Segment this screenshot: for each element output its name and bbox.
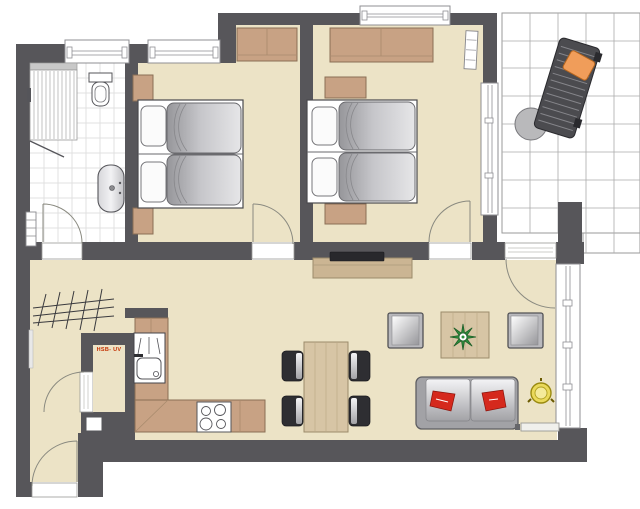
shower-valve [27,88,31,102]
double-bed [138,100,243,208]
wall-top-step [218,13,236,63]
nightstand [133,75,153,101]
pillow [141,106,166,146]
tv [330,252,384,261]
hall-floor [30,440,78,482]
plant [450,324,476,350]
bathroom-door-sill [42,243,82,259]
bedroom2-door-sill [429,243,471,259]
wall-bed2-right-upper [483,25,497,83]
terrace-tiles-strip [583,233,640,253]
wall-kitchen-stub [125,308,168,318]
dining-chair [282,396,303,426]
sofa [416,377,518,429]
doormat [515,423,559,431]
wall-closet-top [81,333,135,345]
armchair [388,313,423,348]
wall-bottom-step [78,433,103,497]
living-room-glazing [556,264,580,428]
kitchen-sink [134,333,165,383]
wall-closet-left [81,345,93,372]
washbasin-tap-dot [119,192,121,194]
dining-chair [349,351,370,381]
wall-mid-2 [82,242,252,260]
double-bed [307,100,417,203]
radiator [464,31,478,70]
red-cushion [482,390,506,411]
armchair [508,313,543,348]
wall-mid-4 [472,242,505,260]
nightstand [325,204,366,224]
bedroom2-window [360,6,450,25]
burner [200,418,212,430]
pillow [312,158,337,196]
nightstand [325,77,366,98]
shaft [86,417,102,431]
bedroom2-terrace-window [481,83,498,215]
wall-bottom-main [95,440,587,462]
bathroom-window [65,40,129,63]
washbasin-tap-dot [119,182,121,184]
nightstand [133,208,153,234]
closet-door-sill [80,372,93,412]
stove [197,402,231,432]
dining-chair [282,351,303,381]
wardrobe [330,28,433,62]
wall-terrace-pier [558,202,582,244]
dining-chair [349,396,370,426]
pillow [141,162,166,202]
toilet-tank [89,73,112,82]
burner [217,420,226,429]
floor-plan: HSB- UV [0,0,640,509]
bedroom1-door-sill [252,243,294,259]
wall-pier-corner [556,242,584,264]
shower-head-wall [30,63,77,70]
floor-plan-canvas: HSB- UV [0,0,640,509]
burner [202,407,211,416]
burner [215,405,226,416]
towel-radiator [26,212,36,246]
entry-door-sill [32,483,77,497]
hall-wall-niche [29,330,33,368]
washbasin-drain [110,186,115,191]
bedroom1-window [148,40,220,63]
pillow [312,107,337,145]
closet-floor [93,345,125,412]
terrace-door-sill [505,243,556,258]
sink-tap [134,354,143,357]
utility-label: HSB- UV [97,347,122,353]
wall-bottom-hall [16,482,32,497]
wall-left [16,44,30,497]
